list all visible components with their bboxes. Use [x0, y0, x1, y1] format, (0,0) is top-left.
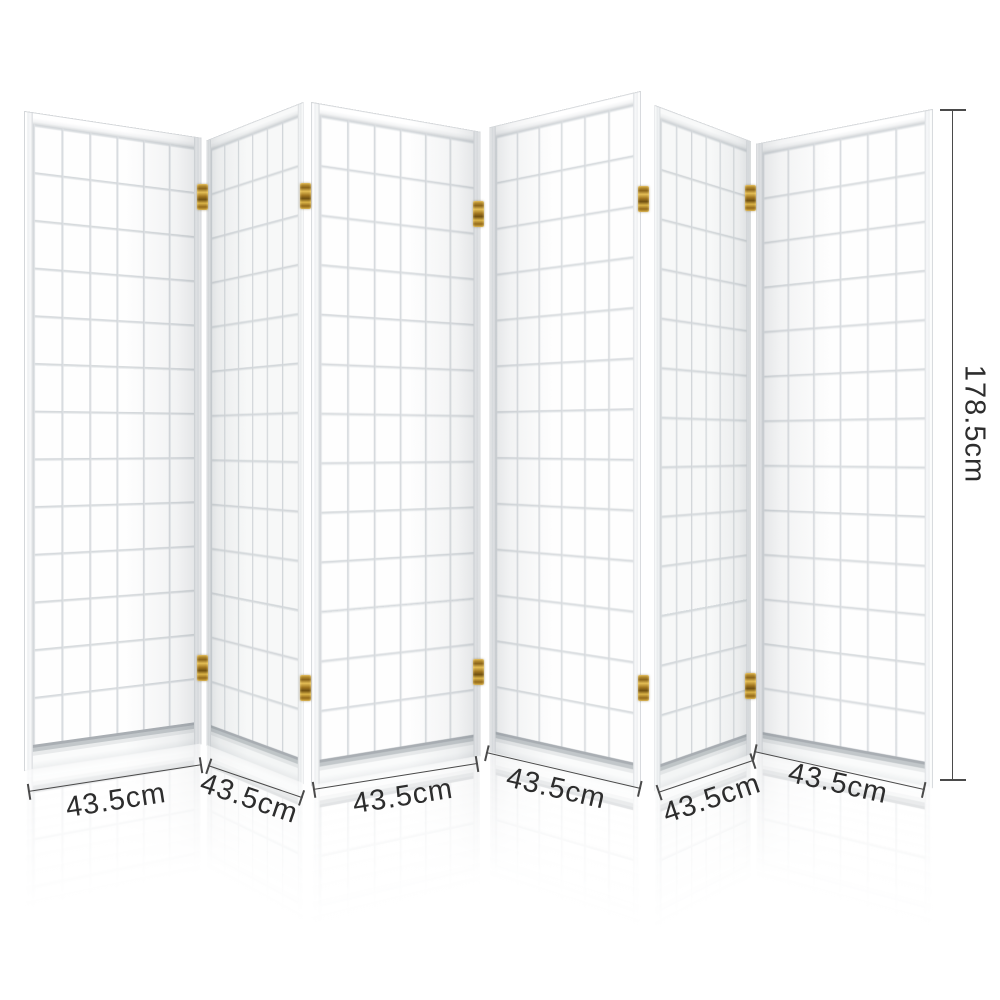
shoji-lattice	[320, 115, 474, 759]
panel-face	[207, 103, 303, 783]
divider-panel-4	[490, 92, 640, 788]
panel-face	[25, 112, 201, 770]
panel-left-stile	[312, 103, 320, 785]
product-photo-stage: 43.5cm 43.5cm 43.5cm 43.5cm 43.5cm 43.5c…	[0, 0, 1000, 1000]
panel-right-stile	[194, 744, 201, 945]
divider-panel-3	[312, 103, 480, 785]
shoji-lattice	[33, 124, 194, 745]
height-label: 178.5cm	[958, 365, 991, 483]
height-dimension-line	[952, 109, 953, 781]
panel-face	[490, 92, 640, 788]
panel-right-stile	[925, 110, 932, 787]
brass-hinge	[197, 655, 208, 681]
panel-face	[25, 744, 201, 945]
panel-right-stile	[473, 756, 479, 960]
shoji-lattice	[763, 775, 925, 962]
panel-right-stile	[746, 140, 750, 755]
divider-panel-1	[25, 112, 201, 770]
panel-left-stile	[312, 784, 320, 960]
panel-face	[312, 103, 480, 785]
panel-right-stile	[633, 786, 640, 963]
divider-panel-6	[757, 110, 932, 787]
panel-right-stile	[925, 786, 932, 962]
panel-face	[655, 106, 751, 790]
panel-left-stile	[490, 752, 496, 963]
brass-hinge	[745, 673, 756, 699]
shoji-lattice	[211, 116, 298, 757]
panel-left-stile	[490, 127, 496, 754]
shoji-lattice	[660, 119, 746, 764]
brass-hinge	[638, 186, 649, 212]
divider-panel-5	[655, 106, 751, 790]
shoji-lattice	[496, 105, 633, 763]
brass-hinge	[197, 184, 208, 210]
brass-hinge	[300, 675, 311, 701]
shoji-lattice	[763, 122, 925, 761]
brass-hinge	[300, 183, 311, 209]
panel-face	[757, 110, 932, 787]
brass-hinge	[473, 201, 484, 227]
brass-hinge	[473, 659, 484, 685]
panel-floor-reflection	[25, 744, 201, 945]
panel-right-stile	[194, 137, 201, 744]
panel-shading	[25, 744, 201, 945]
panel-left-stile	[757, 143, 763, 753]
brass-hinge	[638, 675, 649, 701]
divider-panel-2	[207, 103, 303, 783]
panel-left-stile	[25, 112, 33, 770]
brass-hinge	[745, 185, 756, 211]
panel-left-stile	[655, 106, 660, 790]
panel-left-stile	[655, 788, 660, 965]
